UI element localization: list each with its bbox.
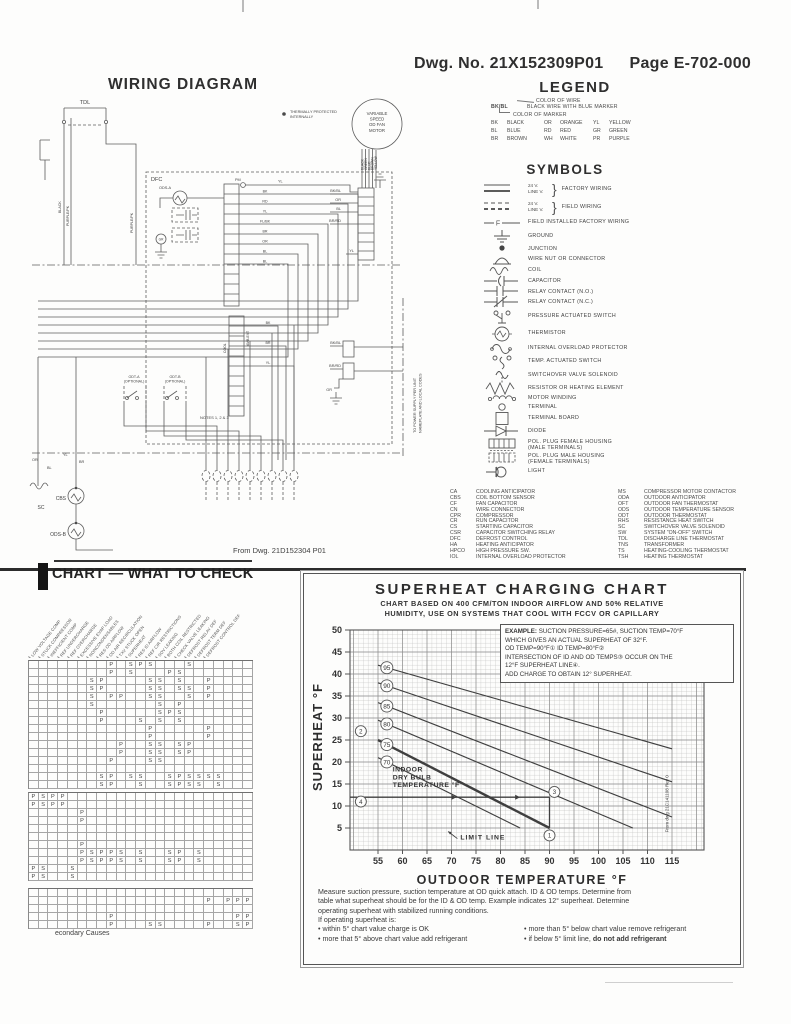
check-cell [233,749,243,757]
check-cell [97,765,107,773]
check-cell [243,677,253,685]
footer-line: If operating superheat is: [318,916,730,925]
check-cell [194,725,204,733]
check-cell [126,857,136,865]
svg-text:OR: OR [262,240,268,244]
check-cell [214,905,224,913]
abbrev-desc: HEATING THERMOSTAT [644,554,790,560]
svg-text:80: 80 [383,721,391,728]
check-chart-caption: econdary Causes [55,930,109,937]
check-cell [165,661,175,669]
check-cell [233,781,243,789]
scan-artifact-line [605,982,733,983]
check-cell [87,865,97,873]
check-cell [165,741,175,749]
check-cell [68,733,78,741]
check-cell [194,825,204,833]
check-cell [165,873,175,881]
check-cell [78,825,88,833]
voltage-label: LINE V. [528,189,552,195]
check-cell [224,905,234,913]
check-cell: S [146,677,156,685]
check-cell [165,717,175,725]
check-cell: S [175,677,185,685]
check-cell [214,793,224,801]
check-cell [165,825,175,833]
example-line: INTERSECTION OF ID AND OD TEMPS③ OCCUR O… [505,654,729,663]
check-cell [78,709,88,717]
check-cell [117,717,127,725]
check-cell [194,749,204,757]
check-cell: S [156,685,166,693]
check-cell: S [165,857,175,865]
check-cell [224,793,234,801]
check-cell: P [117,749,127,757]
svg-text:100: 100 [591,856,606,866]
wire-color-name: YELLOW [609,120,649,128]
check-cell [185,889,195,897]
check-cell [126,717,136,725]
check-cell [233,757,243,765]
check-cell [29,733,39,741]
check-cell [107,833,117,841]
svg-text:CBS: CBS [56,496,67,502]
check-cell [165,905,175,913]
check-cell [126,825,136,833]
svg-text:55: 55 [373,856,383,866]
check-cell [175,889,185,897]
check-cell [39,897,49,905]
symbol-label: JUNCTION [528,246,557,252]
svg-text:FL/BK: FL/BK [260,220,271,224]
check-cell: P [107,921,117,929]
bottom-connector-row [202,460,298,502]
svg-text:110: 110 [640,856,655,866]
check-cell [233,773,243,781]
check-cell [39,661,49,669]
check-cell [29,709,39,717]
check-cell [165,921,175,929]
check-cell [233,801,243,809]
check-cell [97,725,107,733]
wire-color-code: BR [491,136,507,144]
check-cell [165,693,175,701]
svg-text:60: 60 [397,856,407,866]
check-cell [97,825,107,833]
check-cell [175,913,185,921]
check-cell [243,825,253,833]
check-cell [107,865,117,873]
check-cell [117,817,127,825]
check-cell [224,677,234,685]
check-cell: P [29,873,39,881]
check-cell [243,661,253,669]
check-cell [214,669,224,677]
check-cell: P [243,921,253,929]
check-cell [78,765,88,773]
check-cell: S [185,781,195,789]
check-cell [224,921,234,929]
check-cell [214,749,224,757]
legend-title: LEGEND [500,79,650,96]
check-cell [117,661,127,669]
brace-glyph: } [552,199,557,215]
check-cell [204,709,214,717]
check-cell [97,661,107,669]
check-cell: S [68,873,78,881]
check-cell [175,693,185,701]
check-cell [146,669,156,677]
check-cell [214,849,224,857]
check-cell [233,833,243,841]
check-cell [48,749,58,757]
check-cell [175,765,185,773]
check-cell: P [117,741,127,749]
check-cell: P [78,849,88,857]
check-cell [136,817,146,825]
field-wiring-icon [482,199,528,215]
check-cell [58,725,68,733]
check-cell [87,765,97,773]
symbol-label: GROUND [528,233,553,239]
check-cell [156,913,166,921]
check-cell [224,841,234,849]
indoor-dry-bulb-label: INDOOR [393,767,423,774]
check-cell [58,685,68,693]
check-cell [156,817,166,825]
check-cell [194,793,204,801]
symbol-label: CAPACITOR [528,278,561,284]
check-cell: S [126,661,136,669]
check-cell [136,701,146,709]
check-cell: S [165,773,175,781]
check-cell [87,889,97,897]
check-cell [97,841,107,849]
check-cell: P [29,793,39,801]
check-cell [107,809,117,817]
check-cell [146,865,156,873]
check-cell [126,781,136,789]
check-cell: S [87,849,97,857]
check-cell: P [165,669,175,677]
check-cell [78,801,88,809]
check-cell [194,889,204,897]
check-cell: S [233,921,243,929]
symbol-label: FACTORY WIRING [562,186,612,192]
check-cell [107,841,117,849]
check-cell [214,921,224,929]
check-cell: S [146,693,156,701]
check-cell [97,817,107,825]
svg-text:BLACK: BLACK [58,201,62,213]
check-cell [214,717,224,725]
check-cell [97,833,107,841]
symbol-item: 24 V.LINE V.}FACTORY WIRING [482,180,784,198]
wire-color-table: BKBLACKORORANGEYLYELLOWBLBLUERDREDGRGREE… [491,120,649,144]
check-cell [185,801,195,809]
check-cell [194,905,204,913]
check-cell [185,817,195,825]
svg-text:PURPLE/PK: PURPLE/PK [130,212,134,233]
check-cell [224,733,234,741]
check-cell [117,781,127,789]
check-cell [214,865,224,873]
check-cell [156,661,166,669]
voltage-label: LINE V. [528,207,552,213]
check-cell [214,841,224,849]
check-cell [107,873,117,881]
check-cell [29,857,39,865]
symbol-label: TEMP. ACTUATED SWITCH [528,358,602,364]
check-cell: S [194,849,204,857]
check-cell [107,817,117,825]
check-cell [117,757,127,765]
check-cell [107,741,117,749]
check-cell [29,765,39,773]
check-cell [48,897,58,905]
check-cell [48,701,58,709]
svg-text:75: 75 [383,742,391,749]
check-cell [214,685,224,693]
check-cell [29,685,39,693]
check-cell: S [175,709,185,717]
check-cell [78,741,88,749]
check-cell [204,865,214,873]
check-cell [214,677,224,685]
check-cell [243,741,253,749]
example-label: EXAMPLE: [505,628,537,635]
check-cell [136,757,146,765]
check-cell [78,865,88,873]
check-cell [48,905,58,913]
check-cell [58,913,68,921]
svg-text:BK: BK [266,321,271,325]
check-cell [68,773,78,781]
check-cell [214,833,224,841]
check-cell [214,889,224,897]
check-cell: S [156,749,166,757]
check-cell [204,857,214,865]
check-cell [224,765,234,773]
symbols-title: SYMBOLS [500,162,630,177]
symbol-label: POL. PLUG FEMALE HOUSING(MALE TERMINALS) [528,439,612,451]
check-cell [39,701,49,709]
check-cell [204,817,214,825]
check-cell [204,765,214,773]
check-cell [194,809,204,817]
check-cell: P [78,809,88,817]
symbol-item: POL. PLUG FEMALE HOUSING(MALE TERMINALS) [482,438,784,452]
pressure-switch-icon [482,309,528,325]
check-cell: S [214,781,224,789]
check-cell: P [58,793,68,801]
check-cell [68,857,78,865]
check-cell [97,757,107,765]
check-cell [78,921,88,929]
chart-footer-notes: Measure suction pressure, suction temper… [318,888,730,944]
check-cell [175,825,185,833]
svg-text:NAMEPLATE AND LOCAL CODES: NAMEPLATE AND LOCAL CODES [419,373,423,433]
check-cell [87,717,97,725]
check-cell [78,725,88,733]
check-cell [194,757,204,765]
check-cell [233,905,243,913]
check-cell [185,873,195,881]
check-cell [107,701,117,709]
check-cell: P [97,857,107,865]
check-cell [68,889,78,897]
check-cell [117,913,127,921]
check-chart-section: PSPSSPSPSSPSSSPSPSSSSPSPPSSSPSSPPSPSPSSS… [28,660,253,789]
check-cell [214,873,224,881]
check-cell [78,793,88,801]
scanned-service-document: Dwg. No. 21X152309P01Page E-702-000 WIRI… [0,0,791,1024]
check-cell [117,841,127,849]
svg-text:BL: BL [263,260,267,264]
check-cell [136,733,146,741]
check-cell [146,701,156,709]
check-cell [58,921,68,929]
check-cell: S [175,741,185,749]
symbol-label: THERMISTOR [528,330,566,336]
check-cell [39,757,49,765]
check-cell [68,905,78,913]
check-cell [78,781,88,789]
check-cell: P [107,661,117,669]
check-cell [214,825,224,833]
check-cell [204,793,214,801]
check-cell: P [204,685,214,693]
check-cell: S [39,793,49,801]
check-cell [243,693,253,701]
symbol-label: RESISTOR OR HEATING ELEMENT [528,385,624,391]
check-cell [204,833,214,841]
check-cell: P [107,857,117,865]
wiring-diagram: TDLDFCPMYLODS-AGRVARIABLESPEEDOD FANMOTO… [28,88,438,566]
check-cell [185,897,195,905]
check-cell [165,809,175,817]
check-cell [146,889,156,897]
svg-text:TDL: TDL [80,100,90,106]
check-cell: S [68,865,78,873]
check-cell [117,677,127,685]
check-cell: S [204,773,214,781]
check-cell [136,841,146,849]
abbrev-code: TSH [618,554,644,560]
check-cell [194,701,204,709]
check-cell: P [204,693,214,701]
check-cell [136,685,146,693]
check-cell [68,825,78,833]
check-cell [136,889,146,897]
svg-text:BL: BL [336,207,341,211]
check-cell [48,685,58,693]
check-cell: S [87,693,97,701]
check-cell [117,873,127,881]
check-cell [146,781,156,789]
check-cell [68,693,78,701]
check-cell [117,773,127,781]
check-cell [58,765,68,773]
check-cell [165,757,175,765]
wiring-geometry [30,99,403,550]
check-cell [39,913,49,921]
check-cell [156,905,166,913]
check-cell [68,717,78,725]
check-cell [58,741,68,749]
svg-text:90: 90 [544,856,554,866]
check-cell [87,801,97,809]
check-cell [204,825,214,833]
svg-text:80: 80 [495,856,505,866]
check-cell: P [107,913,117,921]
svg-text:70: 70 [383,759,391,766]
check-cell [175,817,185,825]
check-cell [156,809,166,817]
check-cell [29,661,39,669]
check-cell [194,833,204,841]
check-cell [87,741,97,749]
check-cell: P [146,725,156,733]
check-cell: P [107,693,117,701]
check-cell [224,781,234,789]
check-cell [194,669,204,677]
check-cell [48,849,58,857]
check-cell [224,701,234,709]
check-cell [146,833,156,841]
check-cell: S [117,849,127,857]
check-chart-header-band: LOW VOLTAGE COMPSTUCK COMPRESSORINEFFICI… [28,594,253,658]
bullet-item: • more that 5° above chart value add ref… [318,935,524,944]
symbol-label: COIL [528,267,542,273]
scan-fold-mark [537,0,539,9]
check-cell: S [39,801,49,809]
check-cell [78,905,88,913]
check-cell [175,897,185,905]
svg-text:THERMALLY PROTECTED: THERMALLY PROTECTED [290,110,337,114]
check-cell: S [156,709,166,717]
check-cell [29,825,39,833]
check-cell [156,897,166,905]
check-chart-title: CHART — WHAT TO CHECK [52,566,254,582]
check-cell [214,801,224,809]
check-cell: S [146,741,156,749]
check-cell [39,905,49,913]
check-cell [48,841,58,849]
check-cell [87,913,97,921]
check-cell [97,801,107,809]
check-cell [48,889,58,897]
check-cell [156,733,166,741]
check-cell: P [48,801,58,809]
check-cell: S [156,701,166,709]
check-cell [117,725,127,733]
svg-text:10: 10 [332,801,342,811]
check-cell [107,725,117,733]
check-cell [156,765,166,773]
check-cell [68,757,78,765]
check-cell [156,825,166,833]
check-cell [224,809,234,817]
check-cell [165,889,175,897]
check-cell [78,897,88,905]
check-cell [39,849,49,857]
check-cell [185,857,195,865]
check-cell [214,701,224,709]
check-cell [87,809,97,817]
check-cell: P [29,801,39,809]
check-cell [194,677,204,685]
